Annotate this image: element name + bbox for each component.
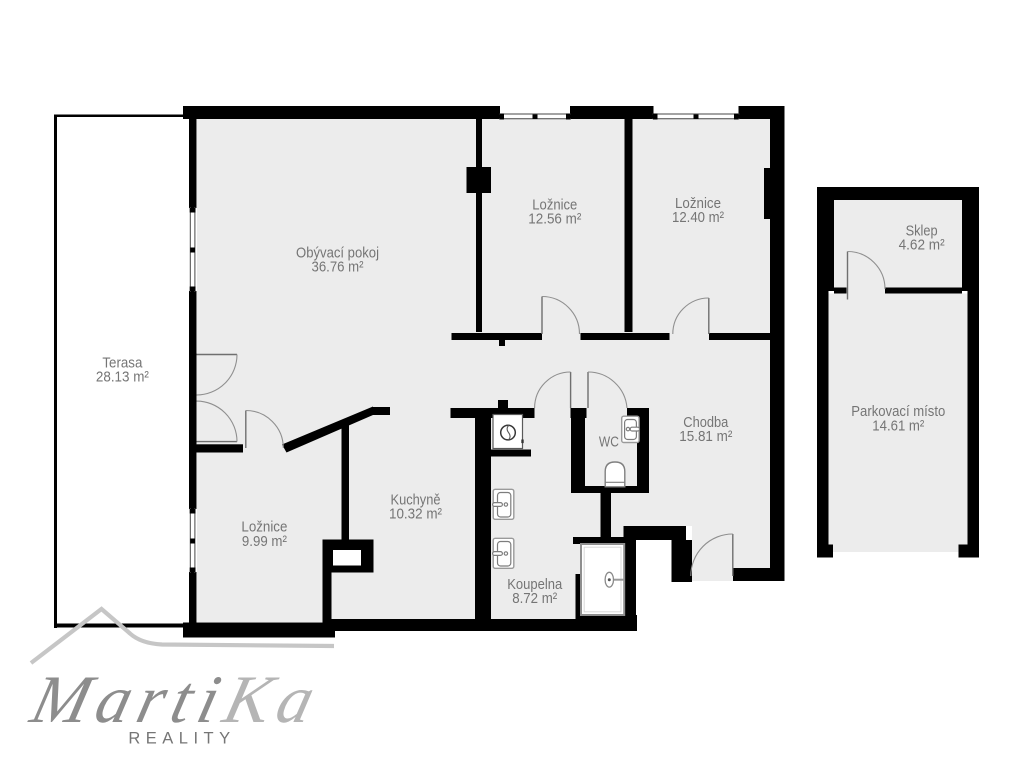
- svg-text:8.72 m²: 8.72 m²: [512, 590, 557, 607]
- svg-text:4.62 m²: 4.62 m²: [899, 236, 945, 253]
- svg-text:36.76 m²: 36.76 m²: [312, 259, 364, 276]
- svg-text:WC: WC: [599, 434, 619, 451]
- svg-text:MartiKa: MartiKa: [23, 661, 330, 737]
- svg-text:10.32 m²: 10.32 m²: [389, 506, 442, 523]
- svg-text:14.61 m²: 14.61 m²: [872, 418, 924, 435]
- svg-text:28.13 m²: 28.13 m²: [96, 369, 149, 386]
- svg-text:12.40 m²: 12.40 m²: [672, 209, 724, 226]
- svg-text:9.99 m²: 9.99 m²: [242, 533, 287, 550]
- svg-text:REALITY: REALITY: [128, 730, 235, 748]
- svg-text:12.56 m²: 12.56 m²: [528, 210, 581, 227]
- svg-text:15.81 m²: 15.81 m²: [679, 428, 732, 445]
